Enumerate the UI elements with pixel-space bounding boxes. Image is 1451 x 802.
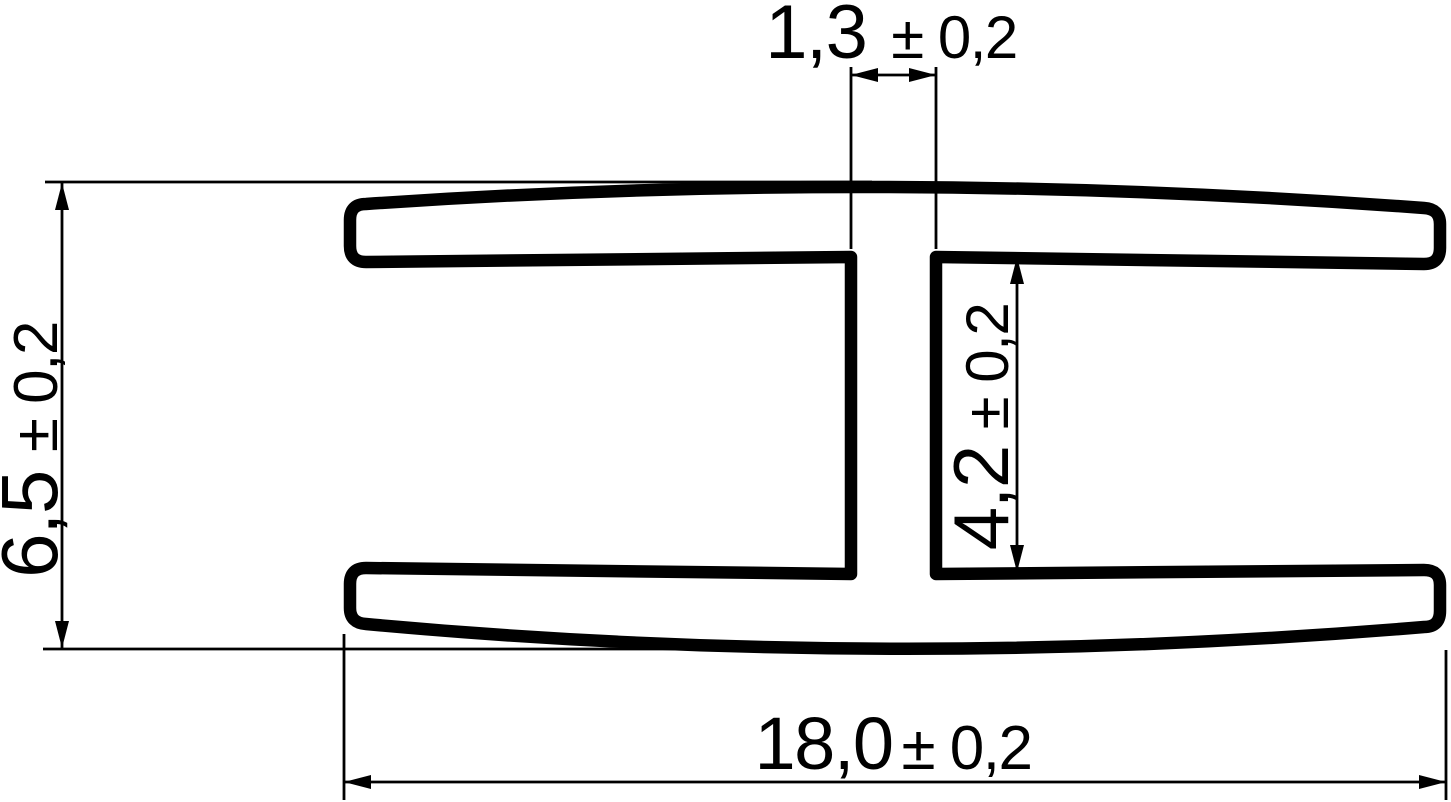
dimension-label-inner-height: 4,2 ± 0,2: [937, 304, 1025, 550]
arrowhead-left: [344, 775, 371, 789]
technical-drawing: 1,3 ± 0,2 6,5 ± 0,2 4,2 ± 0,2: [0, 0, 1451, 802]
dimension-value: 18,0: [755, 702, 893, 785]
dimension-value: 1,3: [765, 0, 866, 75]
dimension-inner-height: 4,2 ± 0,2: [937, 257, 1025, 572]
dimension-value: 4,2: [937, 446, 1025, 550]
dimension-tolerance: ± 0,2: [902, 714, 1032, 783]
dimension-tolerance: ± 0,2: [2, 322, 71, 452]
profile-outline: [350, 187, 1440, 649]
dimension-overall-width: 18,0 ± 0,2: [344, 634, 1446, 800]
dimension-label-overall-width: 18,0 ± 0,2: [755, 702, 1032, 785]
arrowhead-down: [55, 621, 69, 648]
drawing-svg: 1,3 ± 0,2 6,5 ± 0,2 4,2 ± 0,2: [0, 0, 1451, 802]
arrowhead-up: [55, 183, 69, 210]
h-profile-cross-section: [350, 187, 1440, 649]
dimension-label-web-width: 1,3 ± 0,2: [765, 0, 1017, 75]
dimension-label-overall-height: 6,5 ± 0,2: [0, 322, 74, 578]
dimension-value: 6,5: [0, 471, 74, 578]
arrowhead-right: [1419, 775, 1446, 789]
dimension-tolerance: ± 0,2: [954, 304, 1021, 430]
dimension-tolerance: ± 0,2: [891, 4, 1017, 71]
dimension-web-width: 1,3 ± 0,2: [765, 0, 1017, 249]
